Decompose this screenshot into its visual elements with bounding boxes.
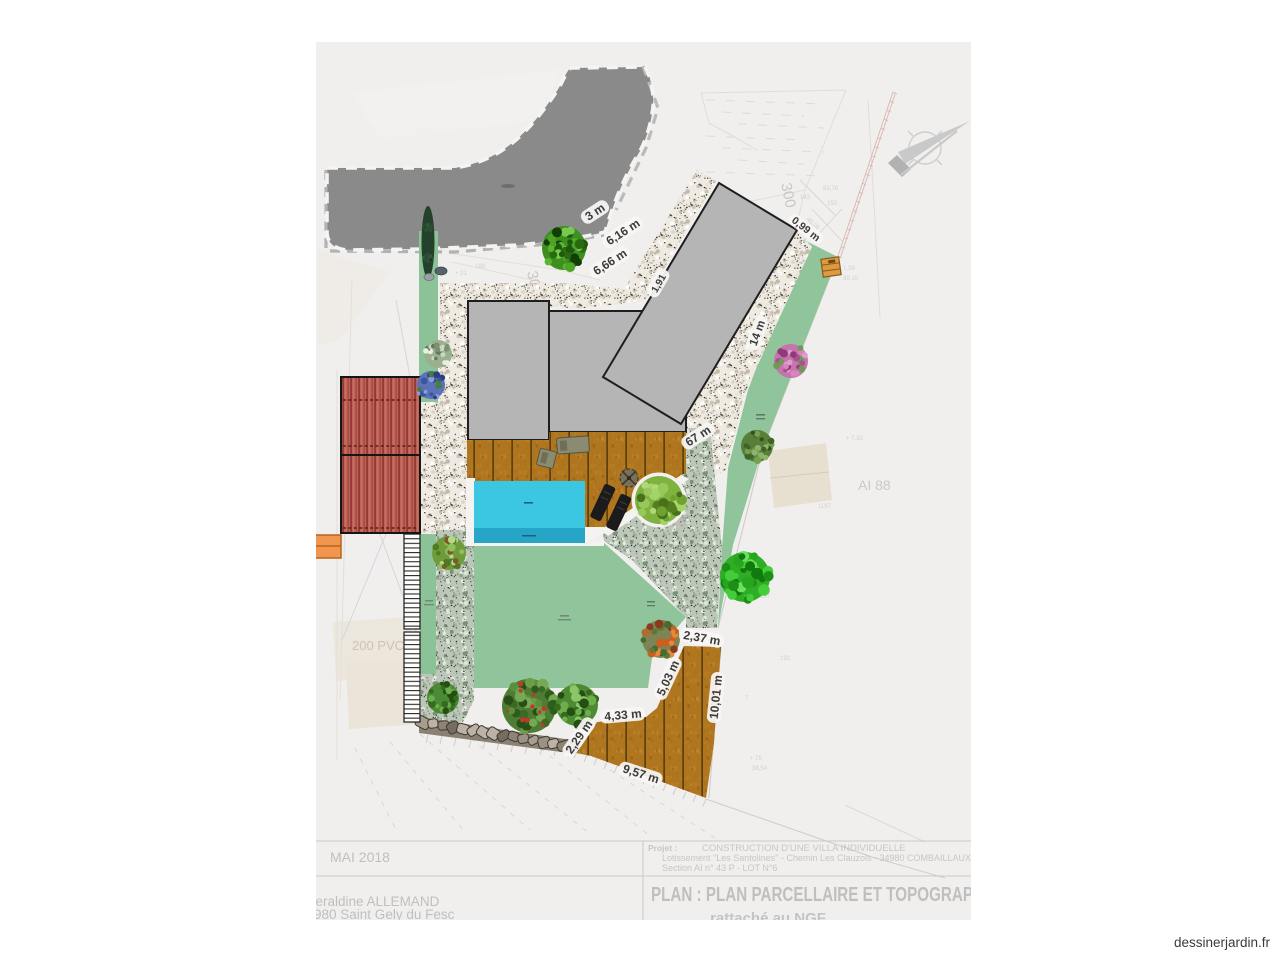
svg-text:PLAN : PLAN PARCELLAIRE ET TOP: PLAN : PLAN PARCELLAIRE ET TOPOGRAP (651, 884, 973, 906)
svg-text:152: 152 (827, 201, 838, 207)
svg-text:Lotissement "Les Santolines" -: Lotissement "Les Santolines" - Chemin Le… (662, 853, 971, 863)
svg-text:93,78: 93,78 (823, 186, 839, 192)
svg-text:dessinerjardin.fr: dessinerjardin.fr (1174, 935, 1271, 950)
svg-text:rattaché au NGF: rattaché au NGF (710, 910, 826, 927)
svg-text:34980 Saint Gely du Fesc: 34980 Saint Gely du Fesc (299, 907, 455, 922)
svg-text:AI 88: AI 88 (858, 477, 891, 493)
svg-text:1,39: 1,39 (843, 266, 855, 272)
svg-text:+ 75: + 75 (750, 756, 763, 762)
svg-text:192: 192 (780, 656, 791, 662)
svg-text:Section AI n° 43 P - LOT N°6: Section AI n° 43 P - LOT N°6 (662, 863, 777, 873)
svg-text:188: 188 (475, 264, 486, 270)
svg-text:Projet :: Projet : (648, 843, 677, 853)
svg-text:143: 143 (800, 195, 811, 201)
svg-text:200 PVC: 200 PVC (352, 638, 404, 653)
svg-text:+ 21: + 21 (455, 271, 468, 277)
svg-text:+ 7,32: + 7,32 (846, 436, 864, 442)
svg-text:1197: 1197 (818, 504, 832, 510)
svg-text:MAI 2018: MAI 2018 (330, 849, 390, 865)
svg-text:38,54: 38,54 (752, 766, 768, 772)
svg-text:30,10: 30,10 (843, 276, 859, 282)
